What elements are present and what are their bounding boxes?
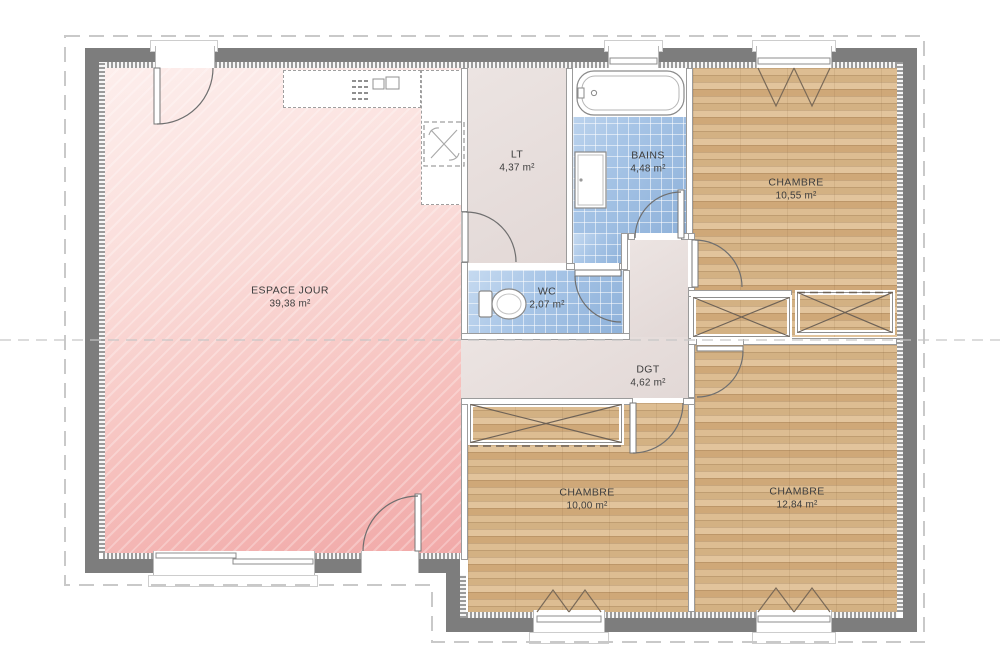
wardrobe-chambre-tr-left-icon [694, 298, 790, 337]
lt-door-icon [462, 212, 516, 262]
room-name: CHAMBRE [768, 177, 823, 189]
room-name: LT [511, 149, 523, 161]
floor-plan: ESPACE JOUR 39,38 m² LT 4,37 m² BAINS 4,… [0, 0, 1000, 650]
door-swings [154, 68, 743, 551]
chambre-tr-door-icon [692, 240, 742, 287]
terrace-door-icon [363, 494, 421, 551]
room-area: 39,38 m² [269, 299, 310, 310]
room-area: 4,62 m² [630, 378, 665, 389]
room-area: 4,48 m² [630, 164, 665, 175]
room-label-dgt: DGT 4,62 m² [630, 364, 665, 391]
room-label-chambre-bottom-right: CHAMBRE 12,84 m² [769, 486, 824, 513]
room-label-wc: WC 2,07 m² [529, 286, 564, 313]
room-area: 4,37 m² [499, 163, 534, 174]
bains-door-icon [635, 190, 684, 238]
plan-linework [0, 0, 1000, 650]
room-name: BAINS [631, 150, 665, 162]
vanity-sink-icon [575, 152, 606, 208]
room-area: 2,07 m² [529, 300, 564, 311]
room-area: 10,00 m² [566, 501, 607, 512]
room-label-chambre-top-right: CHAMBRE 10,55 m² [768, 177, 823, 204]
room-name: ESPACE JOUR [251, 285, 329, 297]
roof-outline [65, 36, 924, 642]
room-label-espace-jour: ESPACE JOUR 39,38 m² [251, 285, 329, 312]
room-name: CHAMBRE [559, 487, 614, 499]
chambre-br-door-icon [697, 346, 743, 397]
room-name: WC [538, 286, 556, 298]
room-label-lt: LT 4,37 m² [499, 149, 534, 176]
room-label-chambre-bottom-middle: CHAMBRE 10,00 m² [559, 487, 614, 514]
wardrobe-chambre-tr-right-icon [797, 293, 893, 333]
entry-door-icon [154, 68, 213, 124]
toilet-icon [479, 289, 526, 319]
room-name: CHAMBRE [769, 486, 824, 498]
room-label-bains: BAINS 4,48 m² [630, 150, 665, 177]
bathtub-icon [577, 71, 684, 115]
room-area: 12,84 m² [776, 500, 817, 511]
room-name: DGT [636, 364, 659, 376]
wc-door-icon [575, 270, 621, 322]
cooktop-icon [352, 77, 399, 100]
wardrobe-chambre-bm-icon [470, 405, 622, 447]
wardrobe-symbols [470, 293, 893, 447]
chambre-bm-door-icon [630, 403, 683, 453]
water-heater-icon [424, 122, 464, 166]
room-area: 10,55 m² [775, 191, 816, 202]
